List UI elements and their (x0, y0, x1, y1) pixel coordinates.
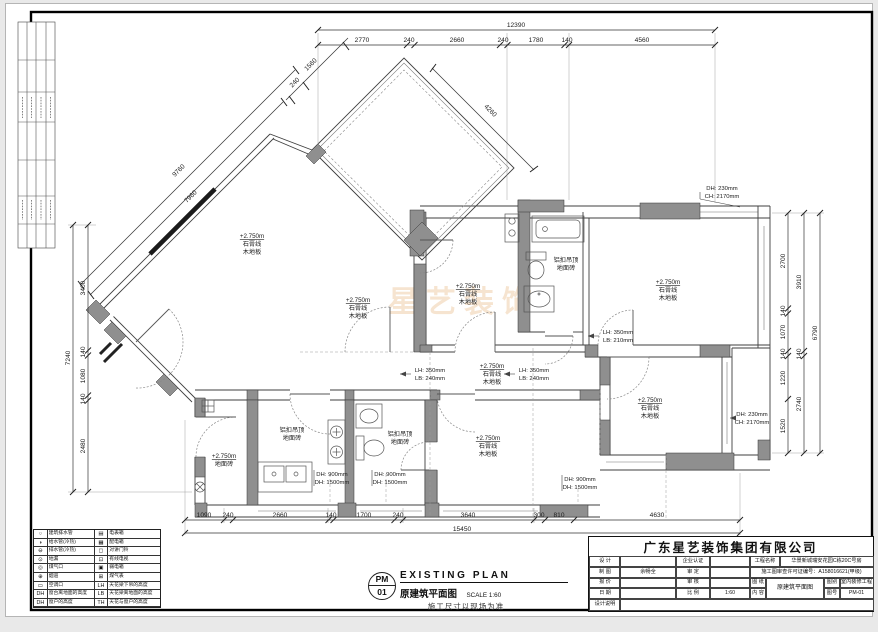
svg-text:240: 240 (289, 76, 302, 89)
legend-label: 窗户的高度 (48, 599, 95, 608)
beam-annotation: LH: 350mm LB: 240mm (504, 368, 549, 382)
svg-text:CH: 2170mm: CH: 2170mm (705, 194, 740, 200)
svg-text:1220: 1220 (780, 370, 787, 385)
dim-right-total: 6790 (812, 325, 819, 340)
svg-text:CH: 2170mm: CH: 2170mm (735, 420, 770, 426)
title-block: 广东星艺装饰集团有限公司 设 计 企业认证 制 图 余畅全 审 定 报 价 审 … (588, 536, 874, 612)
svg-text:DH: 1500mm: DH: 1500mm (315, 480, 350, 486)
room-label-mid: +2.750m 石膏线 木地板 (456, 283, 480, 306)
legend-label: 电表箱 (108, 530, 160, 539)
svg-text:4260: 4260 (482, 103, 498, 119)
svg-text:+2.750m: +2.750m (656, 279, 680, 286)
svg-text:木地板: 木地板 (641, 412, 660, 420)
svg-text:1070: 1070 (780, 324, 787, 339)
room-label-bedroom1: +2.750m 石膏线 木地板 (656, 279, 680, 302)
svg-text:木地板: 木地板 (459, 298, 478, 306)
beam-annotation: LH: 350mm LB: 240mm (400, 368, 445, 382)
design-note-label: 设计说明 (589, 598, 621, 611)
stove (328, 420, 345, 464)
svg-text:2740: 2740 (796, 396, 803, 411)
legend-row: ⊕ 烟道 ⊞ 煤气表 (34, 573, 160, 582)
title-rule (400, 582, 568, 583)
legend-row: ▭ 空调口 LH 天花梁下吊的高度 (34, 582, 160, 591)
svg-text:+2.750m: +2.750m (456, 283, 480, 290)
legend-label: 天花梁下吊的高度 (108, 582, 160, 591)
svg-text:300: 300 (533, 512, 544, 519)
svg-text:石膏线: 石膏线 (659, 286, 678, 294)
supply-pipe-icon: ◑ (34, 539, 48, 548)
svg-text:240: 240 (222, 512, 233, 519)
site-note: 施工尺寸以现场为准 (386, 601, 546, 612)
svg-text:铝扣吊顶: 铝扣吊顶 (388, 430, 413, 438)
svg-text:地面砖: 地面砖 (215, 460, 234, 468)
elevation-text: +2.750m (240, 233, 264, 240)
drawing-sheet-page: 星艺装饰 (0, 0, 878, 632)
dh-abbrev: DH (34, 590, 48, 599)
svg-text:3910: 3910 (796, 274, 803, 289)
legend-row: ◑ 给水管(冷热) ▦ 配电箱 (34, 539, 160, 548)
room-label-living: +2.750m 石膏线 木地板 (240, 233, 264, 256)
low-voltage-box-icon: ▣ (95, 564, 109, 573)
svg-text:地面砖: 地面砖 (557, 264, 576, 272)
svg-text:140: 140 (80, 346, 87, 357)
svg-text:1520: 1520 (780, 418, 787, 433)
svg-text:地面砖: 地面砖 (391, 438, 410, 446)
svg-text:7960: 7960 (183, 189, 199, 205)
svg-text:DH: 230mm: DH: 230mm (706, 186, 738, 192)
floor-text: 木地板 (243, 248, 262, 256)
legend-label: 配电箱 (108, 539, 160, 548)
structural-wall-segment (150, 189, 215, 254)
ceiling-label-bath1: 铝扣吊顶 地面砖 (554, 256, 579, 272)
annotations: LH: 350mm LB: 240mm LH: 350mm LB: 240mm … (314, 186, 769, 491)
svg-text:140: 140 (561, 37, 572, 44)
svg-text:石膏线: 石膏线 (641, 404, 660, 412)
legend-label: 建筑排水管 (48, 530, 95, 539)
svg-text:石膏线: 石膏线 (479, 442, 498, 450)
floor-drain-icon: ⊙ (34, 556, 48, 565)
legend-label: 弱电箱 (108, 564, 160, 573)
svg-text:DH: 1500mm: DH: 1500mm (563, 485, 598, 491)
svg-text:石膏线: 石膏线 (349, 304, 368, 312)
drain-pipe-icon: ⊖ (34, 547, 48, 556)
legend-label: 煤气表 (108, 573, 160, 582)
room-label-corridor: +2.750m 石膏线 木地板 (480, 363, 504, 386)
legend-row: ◎ 煤气口 ▣ 弱电箱 (34, 564, 160, 573)
legend-label: 有线电视 (108, 556, 160, 565)
signature-strip (18, 22, 55, 248)
svg-text:140: 140 (780, 305, 787, 316)
legend-row: ⊖ 排水管(冷热) ◻ 对讲门铃 (34, 547, 160, 556)
svg-text:LB: 240mm: LB: 240mm (519, 376, 549, 382)
svg-text:1560: 1560 (303, 57, 319, 73)
svg-text:DH: 900mm: DH: 900mm (374, 472, 406, 478)
svg-text:+2.750m: +2.750m (346, 297, 370, 304)
room-label-entry: +2.750m 地面砖 (212, 453, 236, 468)
window-annotation: DH: 900mm DH: 1500mm (372, 470, 407, 486)
distribution-box-icon: ▦ (95, 539, 109, 548)
svg-text:木地板: 木地板 (479, 450, 498, 458)
svg-text:2660: 2660 (273, 512, 288, 519)
ac-outlet-icon: ▭ (34, 582, 48, 591)
svg-text:3640: 3640 (461, 512, 476, 519)
dim-bottom-total: 15450 (453, 526, 472, 533)
svg-text:1080: 1080 (80, 368, 87, 383)
drawing-number-prefix: PM (369, 573, 395, 585)
room-label-midroom2: +2.750m 石膏线 木地板 (476, 435, 500, 458)
toilet-2 (356, 436, 364, 460)
svg-text:木地板: 木地板 (483, 378, 502, 386)
svg-text:石膏线: 石膏线 (459, 290, 478, 298)
svg-text:1780: 1780 (529, 37, 544, 44)
gas-port-icon: ◎ (34, 564, 48, 573)
svg-text:2480: 2480 (80, 438, 87, 453)
svg-text:+2.750m: +2.750m (480, 363, 504, 370)
svg-text:240: 240 (497, 37, 508, 44)
drawing-number-value: 01 (369, 585, 395, 598)
svg-text:1700: 1700 (357, 512, 372, 519)
svg-text:LH: 350mm: LH: 350mm (603, 330, 634, 336)
svg-text:2770: 2770 (355, 37, 370, 44)
svg-text:+2.750m: +2.750m (638, 397, 662, 404)
svg-text:DH: 900mm: DH: 900mm (564, 477, 596, 483)
title-chinese: 原建筑平面图 (400, 589, 457, 600)
dh-abbrev: DH (34, 599, 48, 608)
legend-label: 地漏 (48, 556, 95, 565)
legend-label: 对讲门铃 (108, 547, 160, 556)
svg-text:石膏线: 石膏线 (483, 370, 502, 378)
svg-text:140: 140 (780, 348, 787, 359)
legend-label: 烟道 (48, 573, 95, 582)
svg-text:240: 240 (392, 512, 403, 519)
svg-text:LB: 210mm: LB: 210mm (603, 338, 633, 344)
legend-row: ⊙ 地漏 ⊡ 有线电视 (34, 556, 160, 565)
svg-text:DH: 900mm: DH: 900mm (316, 472, 348, 478)
lb-abbrev: LB (95, 590, 109, 599)
drawing-title-text: EXISTING PLAN 原建筑平面图 SCALE 1:60 (400, 570, 568, 602)
gas-meter-icon: ⊞ (95, 573, 109, 582)
svg-text:1090: 1090 (197, 512, 212, 519)
room-label-dining: +2.750m 石膏线 木地板 (346, 297, 370, 320)
svg-text:地面砖: 地面砖 (283, 434, 302, 442)
meter-box-icon: ▤ (95, 530, 109, 539)
room-label-bedroom2: +2.750m 石膏线 木地板 (638, 397, 662, 420)
drawing-number-bubble: PM 01 (368, 572, 396, 600)
svg-text:LH: 350mm: LH: 350mm (519, 368, 550, 374)
entry-arrow-icon (100, 343, 122, 362)
legend-label: 天花与窗户的高度 (108, 599, 160, 608)
svg-text:9760: 9760 (171, 163, 187, 179)
svg-text:2700: 2700 (780, 253, 787, 268)
number-value: PM-01 (839, 587, 874, 600)
svg-text:铝扣吊顶: 铝扣吊顶 (280, 426, 305, 434)
window-annotation: DH: 230mm CH: 2170mm (730, 412, 769, 426)
legend-label: 煤气口 (48, 564, 95, 573)
legend-row: DH 窗户的高度 TH 天花与窗户的高度 (34, 599, 160, 608)
svg-text:木地板: 木地板 (659, 294, 678, 302)
cable-tv-icon: ⊡ (95, 556, 109, 565)
intercom-icon: ◻ (95, 547, 109, 556)
th-abbrev: TH (95, 599, 109, 608)
svg-text:LH: 350mm: LH: 350mm (415, 368, 446, 374)
ceiling-label-bath2: 铝扣吊顶 地面砖 (388, 430, 413, 446)
svg-text:2660: 2660 (450, 37, 465, 44)
ceiling-text: 石膏线 (243, 240, 262, 248)
svg-text:LB: 240mm: LB: 240mm (415, 376, 445, 382)
svg-text:4560: 4560 (635, 37, 650, 44)
title-scale: SCALE 1:60 (466, 592, 501, 599)
svg-text:240: 240 (403, 37, 414, 44)
svg-text:+2.750m: +2.750m (212, 453, 236, 460)
dim-left-total: 7240 (65, 350, 72, 365)
title-english: EXISTING PLAN (400, 570, 568, 581)
beam-annotation: LH: 350mm LB: 210mm (588, 330, 633, 344)
ceiling-label-kitchen: 铝扣吊顶 地面砖 (280, 426, 305, 442)
legend-label: 窗台离地面的高度 (48, 590, 95, 599)
svg-text:140: 140 (796, 348, 803, 359)
water-pipe-icon: ○ (34, 530, 48, 539)
svg-text:140: 140 (325, 512, 336, 519)
window-annotation: DH: 900mm DH: 1500mm (314, 470, 349, 486)
dim-top-total: 12390 (507, 22, 526, 29)
svg-text:木地板: 木地板 (349, 312, 368, 320)
company-name: 广东星艺装饰集团有限公司 (589, 537, 872, 557)
window-annotation: DH: 900mm DH: 1500mm (562, 475, 597, 491)
legend-label: 天花梁离地面的高度 (108, 590, 160, 599)
legend-row: ○ 建筑排水管 ▤ 电表箱 (34, 530, 160, 539)
kitchen-counter (258, 462, 312, 492)
svg-text:DH: 1500mm: DH: 1500mm (373, 480, 408, 486)
legend-label: 给水管(冷热) (48, 539, 95, 548)
sheet-title-value: 原建筑平面图 (765, 577, 825, 600)
legend-row: DH 窗台离地面的高度 LB 天花梁离地面的高度 (34, 590, 160, 599)
svg-text:4630: 4630 (650, 512, 665, 519)
svg-text:810: 810 (553, 512, 564, 519)
svg-text:3400: 3400 (80, 280, 87, 295)
legend-label: 排水管(冷热) (48, 547, 95, 556)
lh-abbrev: LH (95, 582, 109, 591)
legend-table: ○ 建筑排水管 ▤ 电表箱 ◑ 给水管(冷热) ▦ 配电箱 ⊖ 排水管(冷热) … (33, 529, 161, 608)
window-annotation: DH: 230mm CH: 2170mm (700, 186, 740, 207)
svg-text:DH: 230mm: DH: 230mm (736, 412, 768, 418)
svg-text:140: 140 (80, 393, 87, 404)
svg-text:铝扣吊顶: 铝扣吊顶 (554, 256, 579, 264)
svg-text:+2.750m: +2.750m (476, 435, 500, 442)
legend-label: 空调口 (48, 582, 95, 591)
flue-icon: ⊕ (34, 573, 48, 582)
